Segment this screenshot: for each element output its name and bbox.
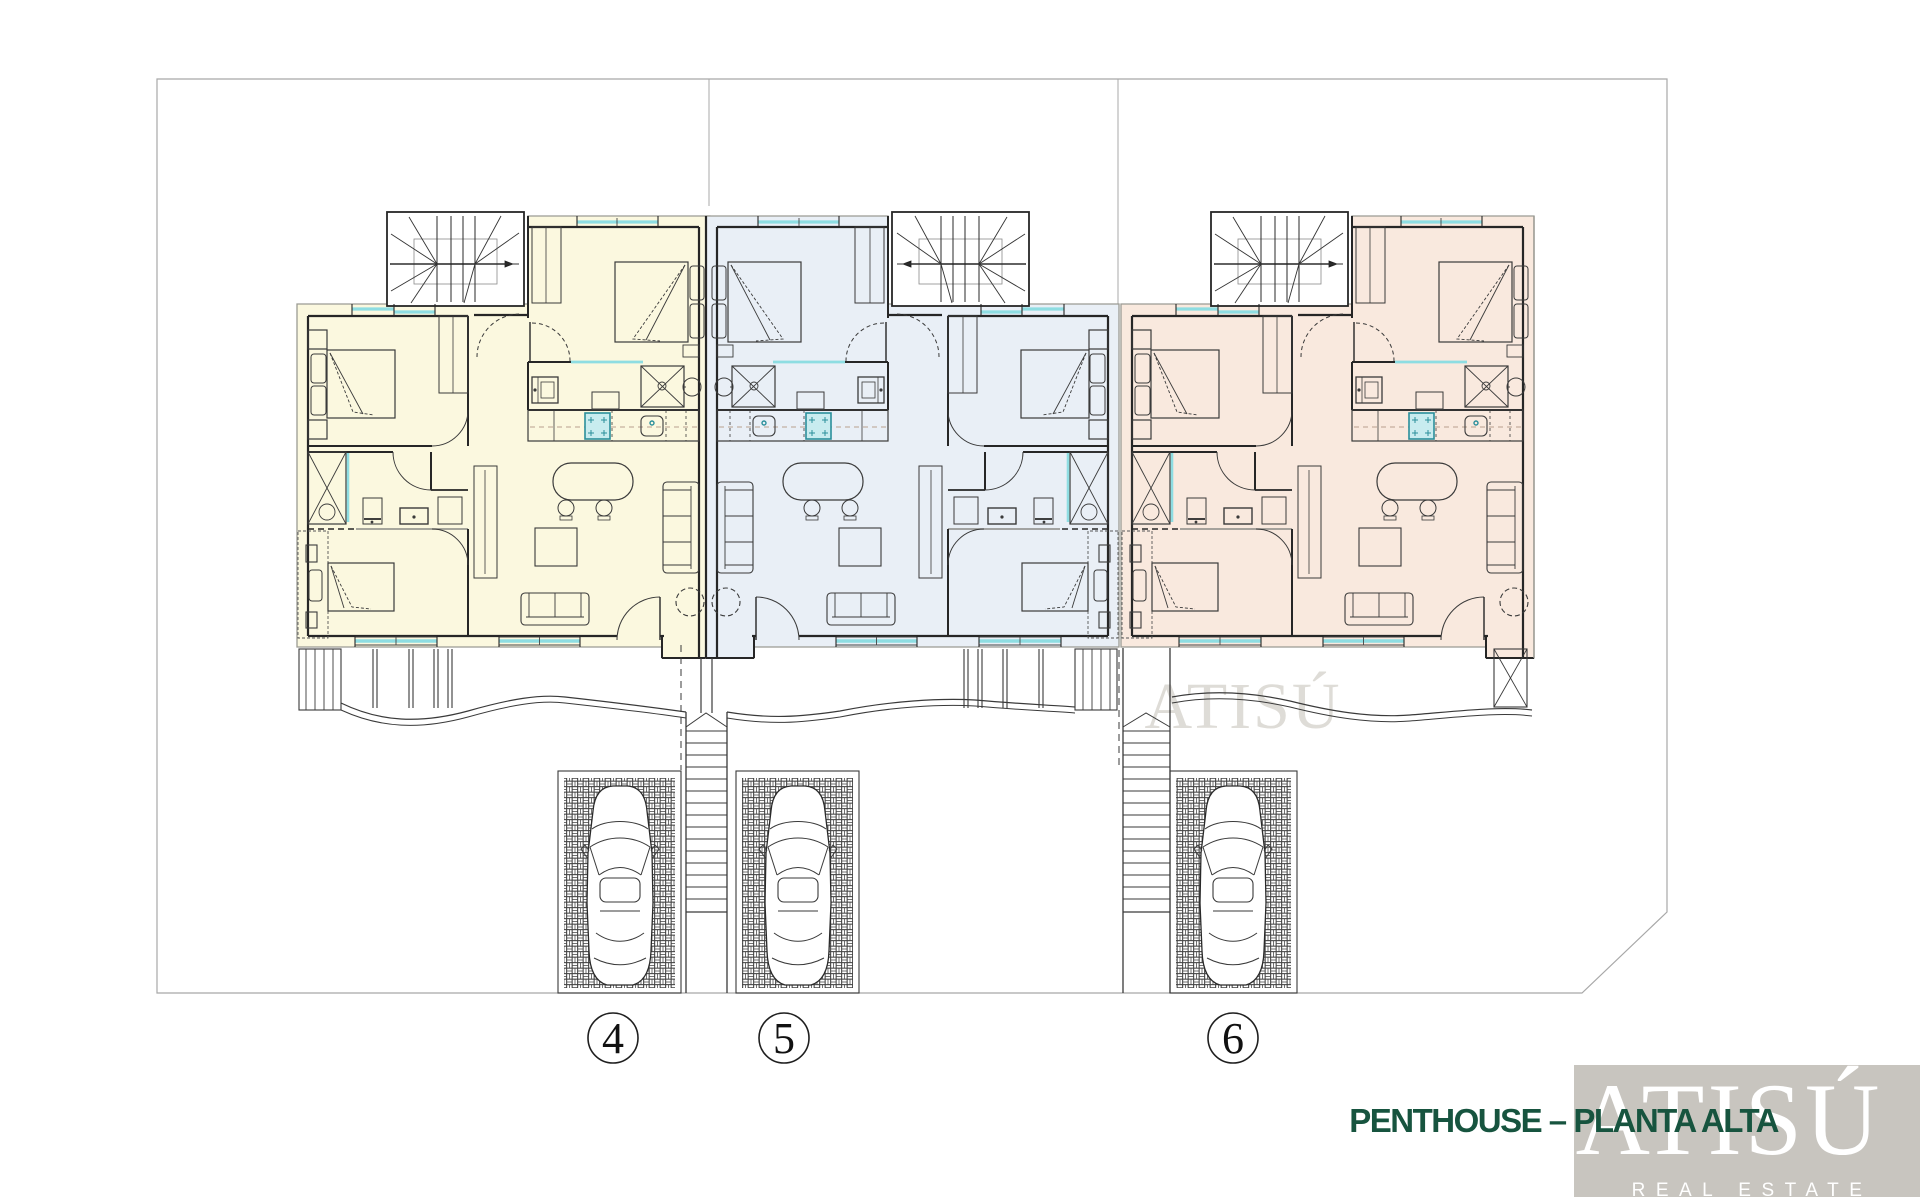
- svg-text:4: 4: [602, 1014, 624, 1063]
- svg-text:5: 5: [773, 1014, 795, 1063]
- svg-text:6: 6: [1222, 1014, 1244, 1063]
- svg-text:PENTHOUSE – PLANTA ALTA: PENTHOUSE – PLANTA ALTA: [1349, 1102, 1778, 1139]
- svg-text:REAL ESTATE: REAL ESTATE: [1632, 1180, 1873, 1197]
